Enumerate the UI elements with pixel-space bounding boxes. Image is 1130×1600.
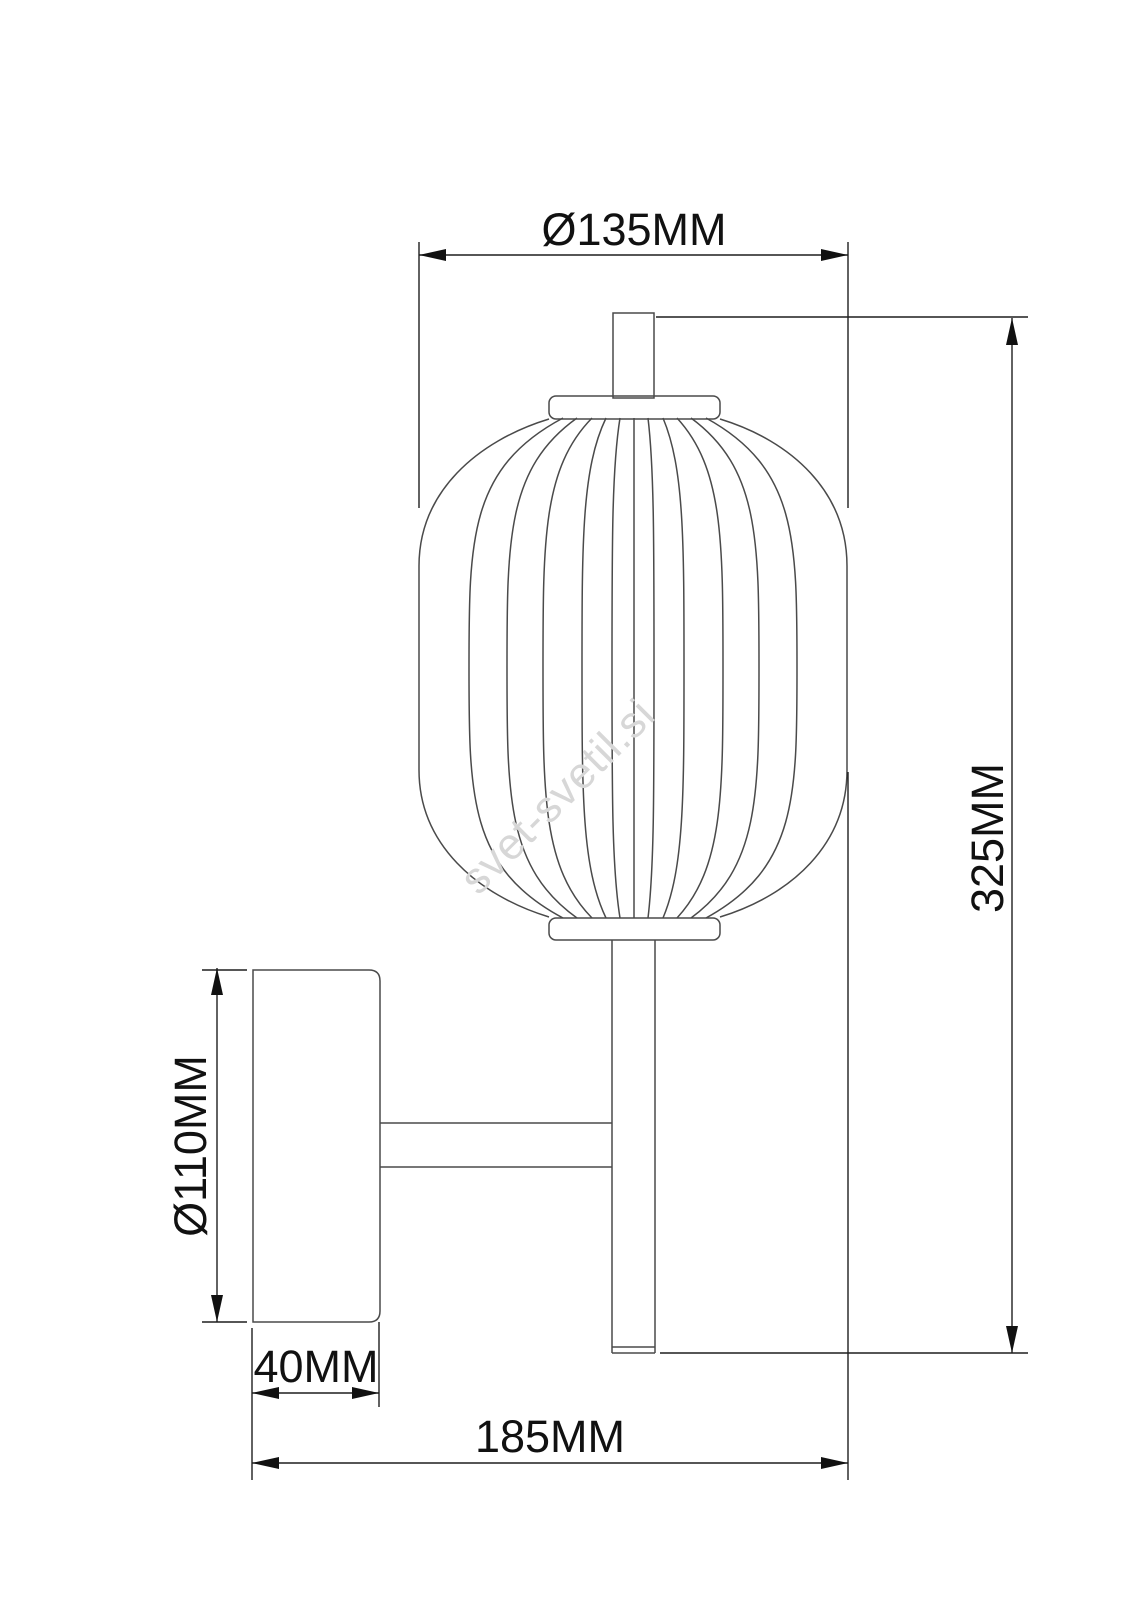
label-shade-diameter: Ø135MM: [418, 205, 850, 255]
shade-bottom-cap: [549, 918, 720, 940]
technical-drawing-page: Ø135MM 325MM Ø110MM 40MM 185MM svet-svet…: [0, 0, 1130, 1600]
label-total-projection: 185MM: [400, 1412, 700, 1462]
label-plate-diameter: Ø110MM: [166, 1026, 216, 1266]
label-total-height: 325MM: [963, 728, 1013, 948]
wall-mount-plate: [253, 970, 380, 1322]
lower-stem: [612, 940, 655, 1353]
support-arm: [380, 1123, 612, 1167]
top-rod: [613, 313, 654, 398]
label-plate-depth: 40MM: [216, 1342, 416, 1392]
shade-top-cap: [549, 396, 720, 419]
shade-outline-right: [720, 419, 847, 917]
